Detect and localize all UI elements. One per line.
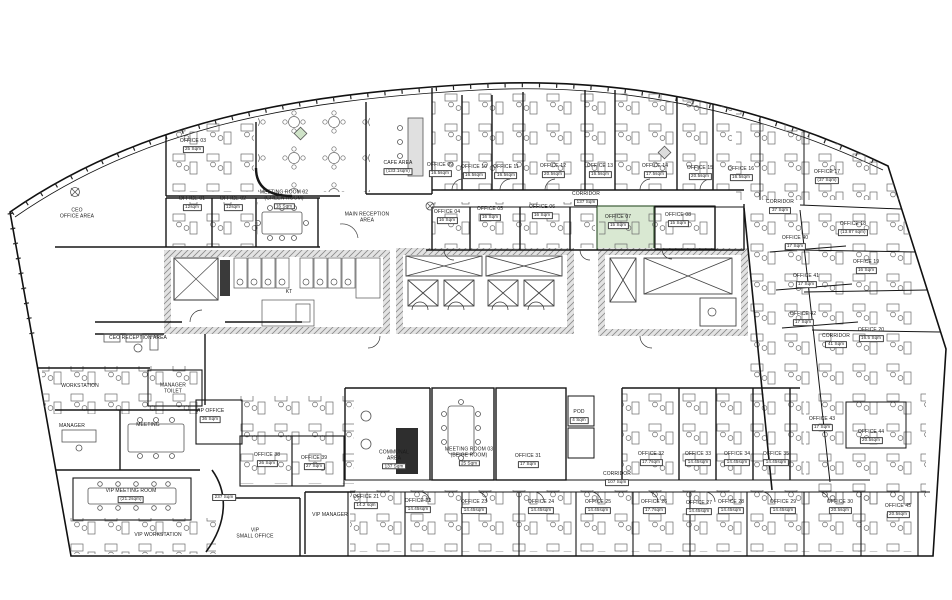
office-floor-plan: OFFICE 0325 SqmCEO OFFICE AREACAFE AREA(… xyxy=(0,0,952,600)
floor-plan-drawing xyxy=(0,0,952,600)
central-lift-core xyxy=(396,248,574,334)
office-07-08-desks xyxy=(599,208,713,248)
east-core xyxy=(598,248,748,336)
